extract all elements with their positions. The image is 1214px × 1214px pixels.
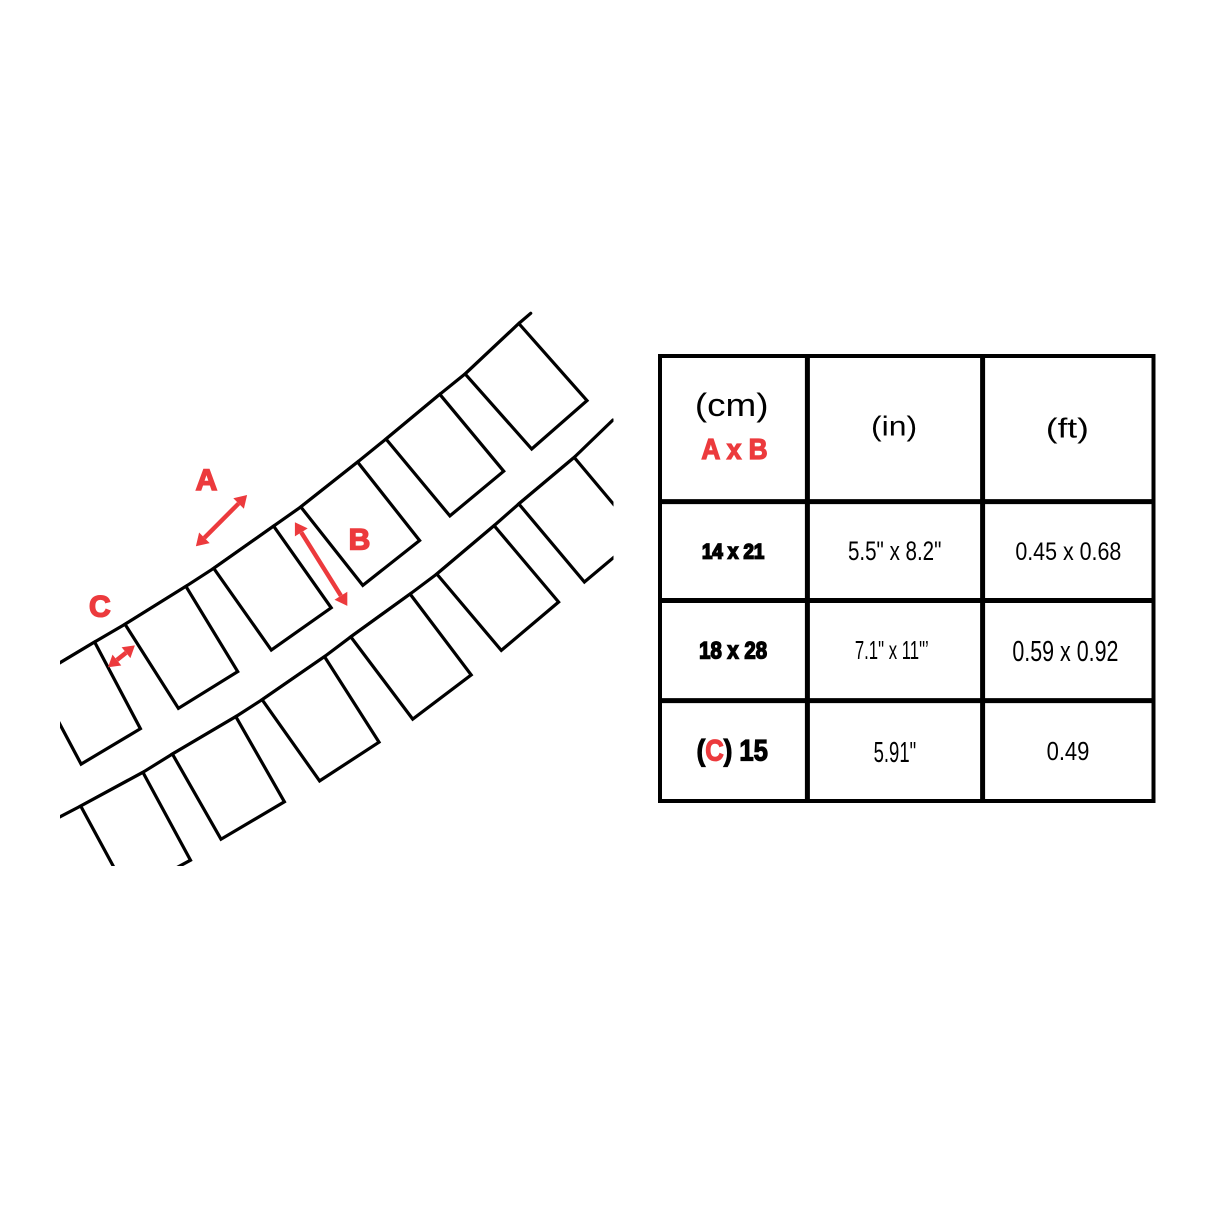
- svg-text:B: B: [349, 524, 371, 557]
- svg-text:(in): (in): [871, 411, 917, 442]
- svg-text:C: C: [89, 591, 111, 624]
- svg-text:5.91": 5.91": [874, 737, 916, 769]
- svg-text:0.45 x 0.68: 0.45 x 0.68: [1015, 537, 1121, 565]
- svg-text:0.59 x 0.92: 0.59 x 0.92: [1012, 636, 1118, 668]
- svg-text:(ft): (ft): [1046, 412, 1089, 444]
- svg-text:0.49: 0.49: [1047, 737, 1090, 766]
- svg-text:(C) 15: (C) 15: [697, 734, 768, 767]
- svg-text:A x B: A x B: [701, 433, 767, 465]
- svg-text:5.5" x 8.2": 5.5" x 8.2": [848, 538, 941, 567]
- svg-text:7.1" x 11"’: 7.1" x 11"’: [855, 635, 929, 665]
- svg-text:14 x 21: 14 x 21: [702, 540, 764, 563]
- svg-text:18 x 28: 18 x 28: [699, 637, 767, 664]
- svg-text:A: A: [196, 464, 218, 497]
- svg-text:(cm): (cm): [695, 388, 769, 423]
